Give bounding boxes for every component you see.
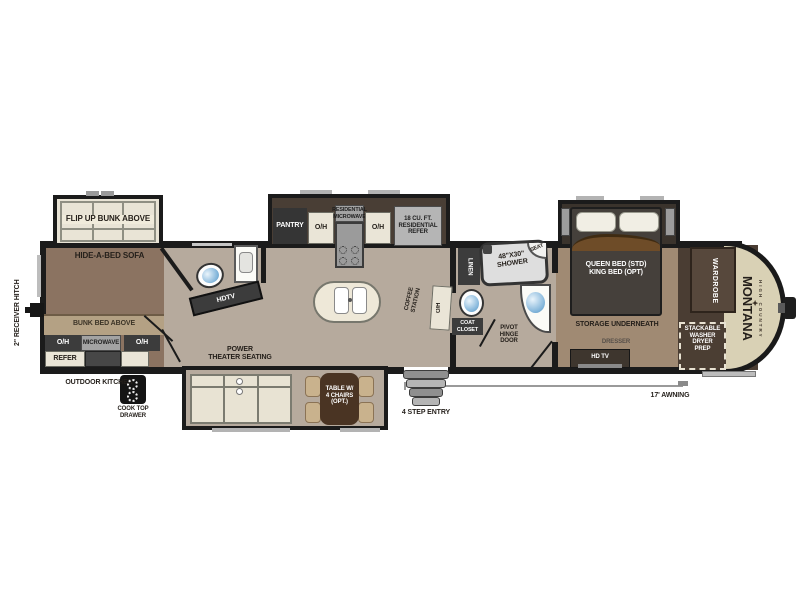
hitch-label: 2" RECEIVER HITCH [14,240,26,385]
brand-logo: MONTANA [736,256,754,360]
linen-closet: LINEN [458,248,480,285]
outdoor-kitchen-label: OUTDOOR KITCHEN [42,379,156,387]
nightstand-left [561,208,570,236]
flip-bunk-handle-1 [86,191,99,196]
pantry: PANTRY [273,208,307,244]
entry-step-4 [412,397,440,406]
cooktop-burner-1 [127,379,138,390]
bed-slide-window-1 [576,196,604,200]
top-wall-window [192,243,232,246]
bath-vanity-sink [526,292,545,313]
flip-bunk-handle-2 [101,191,114,196]
outdoor-refer: REFER [45,351,85,367]
kitchen-slide-window-1 [300,190,332,194]
outdoor-oh-left: O/H [45,335,81,351]
entry-steps-label: 4 STEP ENTRY [398,409,454,417]
cooktop-label: COOK TOP DRAWER [108,406,158,419]
living-slide-mark-1 [212,428,290,432]
nightstand-right [665,208,675,236]
bath-bedroom-wall-upper [552,245,558,273]
bed-label: QUEEN BED (STD) KING BED (OPT) [574,261,658,277]
floorplan-canvas: 2" RECEIVER HITCH FLIP UP BUNK ABOVE HID… [0,0,800,600]
entry-step-1 [403,370,449,379]
bed-slide-window-2 [640,196,664,200]
kitchen-slide-window-2 [368,190,400,194]
kitchen-oh-left: O/H [308,212,334,244]
theater-cupholder-1 [236,378,243,385]
dinette-chair-1 [305,376,321,397]
dinette-chair-2 [358,376,374,397]
stackable-label: STACKABLE WASHER DRYER PREP [679,326,726,353]
left-wall-window [37,255,41,297]
flip-bunk-label: FLIP UP BUNK ABOVE [62,215,154,224]
dinette-chair-4 [358,402,374,423]
kitchen-oh-right: O/H [365,212,391,244]
island-faucet [348,298,352,302]
bath-wall-lower [450,333,456,370]
residential-microwave: RESIDENTIAL MICROWAVE [335,205,364,222]
theater-seating-label: POWER THEATER SEATING [192,346,288,362]
entry-step-2 [406,379,446,388]
dinette-chair-3 [305,402,321,423]
outdoor-cabinet [121,351,149,367]
front-step-strip [702,371,756,377]
midbath-vanity-sink [239,252,253,273]
outdoor-microwave: MICROWAVE [81,335,121,351]
dresser-hdtv-label: HD TV [570,354,630,361]
cooktop-burner-2 [127,391,138,402]
hide-a-bed-sofa-label: HIDE-A-BED SOFA [52,252,167,261]
bunk-bed-label: BUNK BED ABOVE [48,320,160,328]
bottom-wall [40,367,742,374]
awning-end-right [678,381,688,386]
dresser-tv [578,364,622,368]
range-burner-4 [351,257,359,265]
wardrobe-label: WARDROBE [706,258,718,304]
storage-underneath-label: STORAGE UNDERNEATH [558,321,676,329]
kingpin-collar [778,303,785,313]
bed-pillow-left [576,212,616,232]
dinette-table-label: TABLE W/ 4 CHAIRS (OPT.) [320,386,359,406]
hitch-bracket [30,303,44,317]
coat-closet: COAT CLOSET [452,318,483,335]
midbath-side-wall [261,245,266,283]
island-sink-left [334,287,349,314]
theater-cupholder-2 [236,388,243,395]
island-sink-right [352,287,367,314]
entry-step-3 [409,388,443,397]
bed-pillow-right [619,212,659,232]
range-burner-3 [339,257,347,265]
awning-label: 17' AWNING [644,392,696,400]
shower-head [483,245,492,254]
outdoor-counter [85,351,121,367]
outdoor-oh-right: O/H [124,335,160,351]
bath-bedroom-wall-lower [552,342,558,370]
awning-line [405,385,683,387]
residential-refer: 18 CU. FT. RESIDENTIAL REFER [394,206,442,246]
bath-toilet-bowl [464,295,479,312]
galley-oh: O/H [436,294,446,322]
living-slide-mark-2 [340,428,380,432]
brand-sub-logo: HIGH COUNTRY [755,272,763,346]
range-burner-2 [351,246,359,254]
range-burner-1 [339,246,347,254]
pivot-door-label: PIVOT HINGE DOOR [491,325,527,345]
dresser-label: DRESSER [588,339,644,346]
